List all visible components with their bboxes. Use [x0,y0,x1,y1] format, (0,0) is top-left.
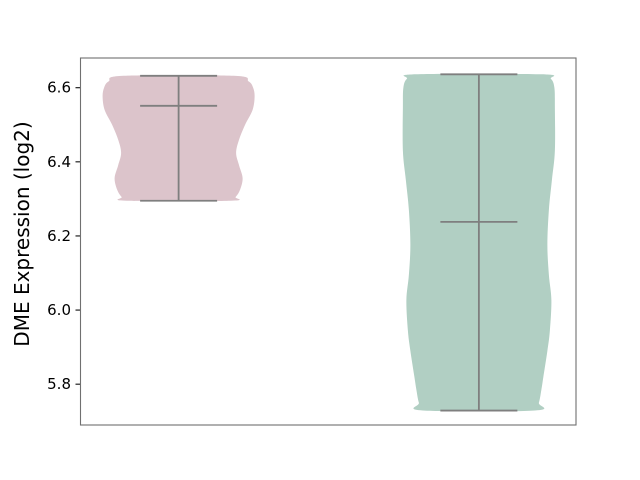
y-tick-label: 6.6 [47,79,71,97]
y-axis: 5.86.06.26.46.6 [47,79,80,394]
y-tick-label: 6.4 [47,153,71,171]
y-tick-label: 6.0 [47,301,71,319]
violin-chart: 5.86.06.26.46.6 DME Expression (log2) [0,0,640,480]
figure: 5.86.06.26.46.6 DME Expression (log2) [0,0,640,480]
y-axis-label: DME Expression (log2) [10,121,34,346]
y-tick-label: 5.8 [47,375,71,393]
y-tick-label: 6.2 [47,227,71,245]
